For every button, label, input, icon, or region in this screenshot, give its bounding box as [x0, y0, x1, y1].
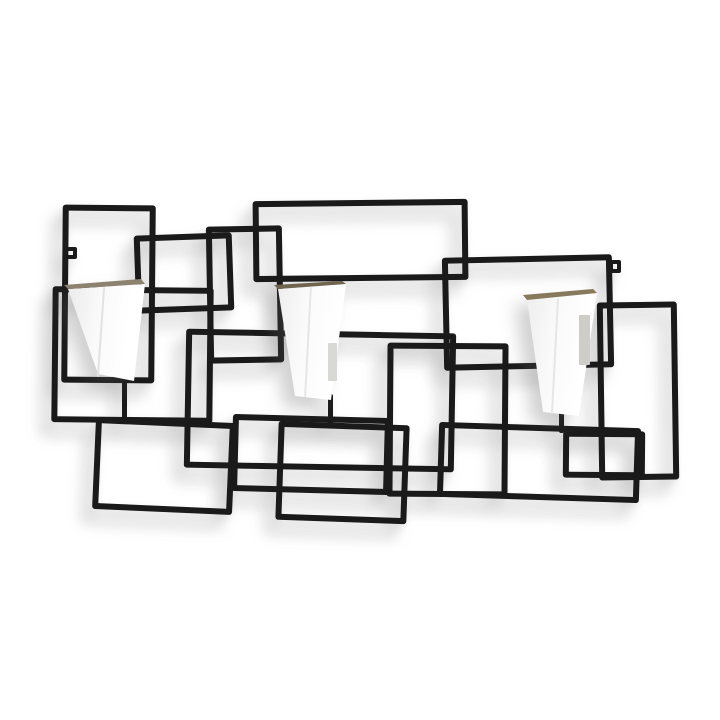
- planter-pot-left: [64, 278, 148, 382]
- product-photo-wall-planter: [0, 0, 720, 720]
- planter-pot-center: [274, 281, 352, 403]
- planter-pot-center-body: [274, 281, 352, 403]
- planter-pot-right-body: [522, 289, 602, 419]
- planter-pot-center-hanger-slot: [328, 343, 337, 381]
- planter-pot-left-body: [64, 278, 148, 382]
- planter-pot-right: [522, 289, 602, 419]
- planter-pot-right-hanger-slot: [579, 315, 590, 365]
- planter-pots: [0, 0, 720, 720]
